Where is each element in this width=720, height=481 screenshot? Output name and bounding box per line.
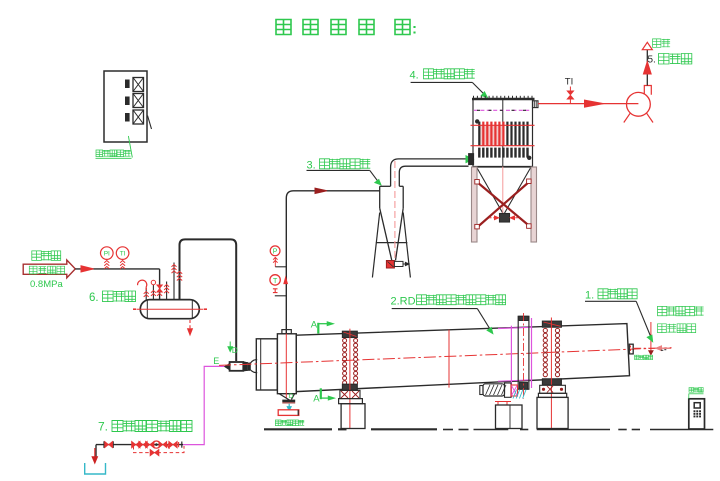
svg-text:1.: 1. bbox=[585, 290, 594, 302]
svg-text:D: D bbox=[232, 345, 238, 355]
svg-text:7.: 7. bbox=[98, 420, 108, 434]
svg-text:0.8MPa: 0.8MPa bbox=[30, 279, 63, 290]
svg-text:4.: 4. bbox=[410, 69, 419, 81]
svg-text:5.: 5. bbox=[648, 55, 656, 66]
svg-text:TI: TI bbox=[120, 251, 126, 258]
svg-text:6.: 6. bbox=[89, 292, 99, 304]
svg-text:P: P bbox=[273, 249, 278, 256]
svg-text:T: T bbox=[273, 278, 278, 285]
svg-text::: : bbox=[412, 21, 417, 38]
svg-text:D: D bbox=[289, 393, 294, 400]
svg-text:A: A bbox=[313, 394, 320, 405]
svg-text:3.: 3. bbox=[307, 159, 316, 171]
svg-text:TI: TI bbox=[565, 77, 573, 88]
svg-text:E: E bbox=[213, 356, 219, 366]
svg-text:A: A bbox=[311, 320, 318, 331]
svg-text:PI: PI bbox=[104, 251, 110, 258]
svg-text:2.RD: 2.RD bbox=[391, 296, 416, 308]
